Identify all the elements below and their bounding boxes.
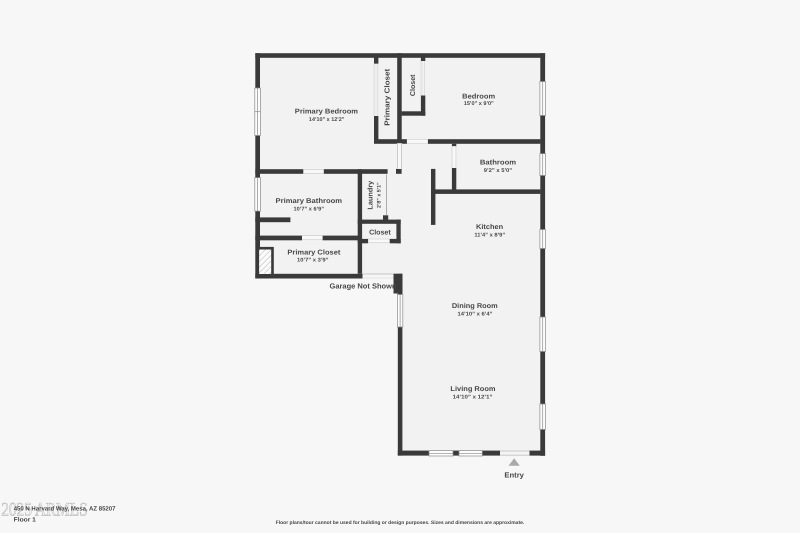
svg-text:Primary Closet: Primary Closet	[287, 249, 341, 257]
svg-text:10’7” x 3’9”: 10’7” x 3’9”	[297, 258, 329, 264]
svg-text:Primary Bathroom: Primary Bathroom	[276, 197, 343, 205]
svg-text:Garage Not Shown: Garage Not Shown	[330, 282, 397, 291]
svg-text:10’7” x 6’9”: 10’7” x 6’9”	[294, 206, 325, 212]
svg-text:Primary Closet: Primary Closet	[382, 68, 391, 126]
svg-text:14’10” x 12’1”: 14’10” x 12’1”	[453, 394, 493, 400]
svg-text:Closet: Closet	[409, 74, 417, 96]
svg-text:2’8” x 5’1”: 2’8” x 5’1”	[376, 182, 382, 208]
svg-text:Living Room: Living Room	[450, 385, 495, 393]
svg-text:Bathroom: Bathroom	[480, 159, 516, 167]
svg-text:11’4” x 8’9”: 11’4” x 8’9”	[474, 232, 505, 238]
svg-text:Floor 1: Floor 1	[14, 517, 37, 524]
svg-text:9’2” x 5’0”: 9’2” x 5’0”	[484, 168, 513, 174]
svg-text:450 N Harvard Way, Mesa, AZ 85: 450 N Harvard Way, Mesa, AZ 85207	[14, 505, 116, 512]
svg-text:Laundry: Laundry	[366, 181, 374, 210]
svg-text:Dining Room: Dining Room	[452, 302, 498, 310]
svg-text:Closet: Closet	[369, 228, 391, 236]
svg-text:14’10” x 6’4”: 14’10” x 6’4”	[458, 312, 493, 318]
svg-text:Kitchen: Kitchen	[476, 223, 503, 231]
svg-text:Floor plans/tour cannot be use: Floor plans/tour cannot be used for buil…	[276, 520, 525, 526]
svg-text:15’0” x 9’0”: 15’0” x 9’0”	[464, 101, 494, 107]
svg-text:Entry: Entry	[504, 471, 524, 480]
svg-text:14’10” x 12’2”: 14’10” x 12’2”	[309, 117, 345, 123]
svg-text:Primary Bedroom: Primary Bedroom	[295, 108, 358, 116]
svg-text:Bedroom: Bedroom	[462, 92, 495, 100]
